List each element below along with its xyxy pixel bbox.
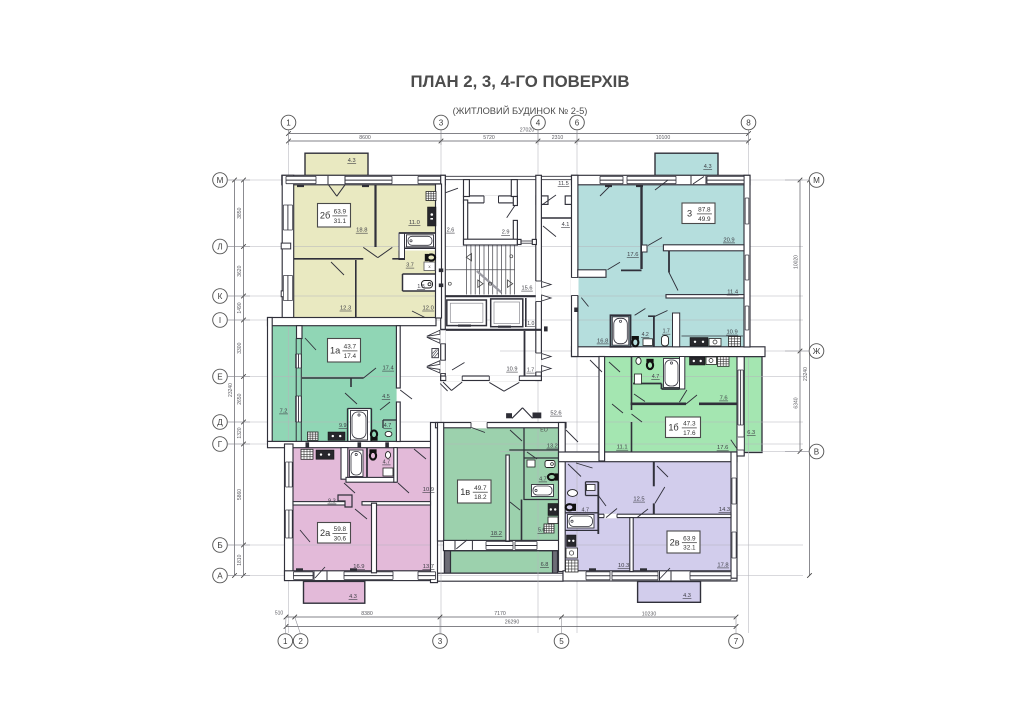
svg-text:30.6: 30.6 <box>334 535 347 542</box>
svg-text:31.1: 31.1 <box>334 218 347 225</box>
svg-text:ЕО: ЕО <box>540 428 548 434</box>
svg-text:4.3: 4.3 <box>348 158 356 164</box>
svg-text:23240: 23240 <box>228 383 234 397</box>
svg-text:1.0: 1.0 <box>527 321 534 327</box>
svg-text:10100: 10100 <box>656 135 671 141</box>
svg-text:14.3: 14.3 <box>719 507 730 513</box>
svg-text:4.2: 4.2 <box>642 332 649 338</box>
svg-text:63.9: 63.9 <box>334 209 347 216</box>
svg-text:10.3: 10.3 <box>618 563 629 569</box>
svg-text:13.7: 13.7 <box>423 564 434 570</box>
svg-text:1810: 1810 <box>237 554 243 565</box>
svg-text:Б: Б <box>217 541 222 550</box>
svg-text:20.9: 20.9 <box>723 237 734 243</box>
svg-text:10.9: 10.9 <box>423 487 434 493</box>
svg-text:5: 5 <box>559 637 564 646</box>
svg-text:15.6: 15.6 <box>522 286 533 292</box>
svg-text:Л: Л <box>217 242 222 251</box>
svg-text:4.3: 4.3 <box>683 593 691 599</box>
svg-text:12.5: 12.5 <box>633 497 644 503</box>
svg-text:18.2: 18.2 <box>491 531 502 537</box>
svg-text:11.4: 11.4 <box>727 290 739 296</box>
svg-text:В: В <box>814 447 819 456</box>
svg-text:2: 2 <box>298 637 303 646</box>
svg-text:1в: 1в <box>460 487 470 497</box>
svg-text:4.7: 4.7 <box>582 507 590 513</box>
svg-text:1.7: 1.7 <box>527 368 534 374</box>
svg-text:2.9: 2.9 <box>502 230 510 236</box>
svg-text:11.5: 11.5 <box>558 181 568 187</box>
svg-text:І: І <box>219 316 221 325</box>
svg-text:К: К <box>218 292 223 301</box>
svg-text:4.7: 4.7 <box>652 374 660 380</box>
svg-text:4.3: 4.3 <box>704 164 712 170</box>
svg-text:8: 8 <box>746 118 751 127</box>
svg-text:1.7: 1.7 <box>663 329 670 335</box>
svg-text:17.6: 17.6 <box>683 430 696 437</box>
svg-text:3: 3 <box>439 118 444 127</box>
svg-text:59.8: 59.8 <box>334 526 347 533</box>
svg-text:4: 4 <box>536 118 541 127</box>
svg-text:3300: 3300 <box>237 342 243 353</box>
svg-text:5860: 5860 <box>237 489 243 500</box>
svg-text:М: М <box>813 176 820 185</box>
svg-text:49.7: 49.7 <box>474 485 487 492</box>
svg-text:63.9: 63.9 <box>683 535 696 542</box>
svg-text:2б: 2б <box>320 211 330 221</box>
svg-text:47.3: 47.3 <box>683 421 696 428</box>
svg-text:16.8: 16.8 <box>597 338 608 344</box>
svg-text:4.7: 4.7 <box>384 423 392 429</box>
svg-text:10020: 10020 <box>794 255 800 269</box>
svg-text:4.7: 4.7 <box>539 476 547 482</box>
svg-text:(ЖИТЛОВИЙ БУДИНОК № 2-5): (ЖИТЛОВИЙ БУДИНОК № 2-5) <box>453 105 588 116</box>
svg-text:8600: 8600 <box>359 135 371 141</box>
svg-text:17.4: 17.4 <box>382 366 394 372</box>
svg-text:13.2: 13.2 <box>547 443 558 449</box>
svg-text:4.3: 4.3 <box>349 594 357 600</box>
svg-text:Ж: Ж <box>813 347 821 356</box>
svg-text:17.6: 17.6 <box>717 445 728 451</box>
svg-text:8380: 8380 <box>361 611 373 617</box>
svg-text:11.0: 11.0 <box>409 220 420 226</box>
svg-text:Е: Е <box>217 372 223 381</box>
svg-text:10.9: 10.9 <box>507 367 518 373</box>
svg-text:2650: 2650 <box>237 393 243 404</box>
svg-text:7: 7 <box>734 637 739 646</box>
svg-text:43.7: 43.7 <box>344 344 357 351</box>
svg-text:2.6: 2.6 <box>447 228 455 234</box>
svg-text:1490: 1490 <box>237 302 243 313</box>
svg-text:6: 6 <box>575 118 580 127</box>
svg-text:26290: 26290 <box>505 619 520 625</box>
svg-text:7170: 7170 <box>494 611 506 617</box>
svg-text:17.8: 17.8 <box>717 562 728 568</box>
svg-text:6.3: 6.3 <box>747 430 755 436</box>
svg-text:7.6: 7.6 <box>720 395 728 401</box>
svg-text:3.7: 3.7 <box>406 263 414 269</box>
svg-text:12.3: 12.3 <box>340 305 351 311</box>
svg-text:1а: 1а <box>330 346 341 356</box>
svg-text:1б: 1б <box>668 423 678 433</box>
svg-text:27020: 27020 <box>520 128 535 134</box>
svg-text:510: 510 <box>275 611 284 617</box>
svg-text:10.9: 10.9 <box>726 330 737 336</box>
svg-text:4.7: 4.7 <box>383 459 391 465</box>
svg-text:18.2: 18.2 <box>474 494 487 501</box>
svg-text:Г: Г <box>218 440 223 449</box>
svg-text:А: А <box>217 571 223 580</box>
svg-text:5.6: 5.6 <box>538 528 546 534</box>
svg-text:Д: Д <box>217 418 223 427</box>
svg-text:2в: 2в <box>670 537 680 547</box>
svg-text:1320: 1320 <box>237 427 243 438</box>
svg-text:2а: 2а <box>320 528 331 538</box>
svg-text:2310: 2310 <box>552 135 564 141</box>
svg-text:4.5: 4.5 <box>382 394 390 400</box>
svg-text:6340: 6340 <box>794 397 800 408</box>
svg-text:3850: 3850 <box>237 207 243 218</box>
svg-text:3: 3 <box>438 637 443 646</box>
svg-text:17.4: 17.4 <box>344 353 357 360</box>
svg-text:11.1: 11.1 <box>617 445 628 451</box>
svg-text:49.9: 49.9 <box>698 216 711 223</box>
svg-text:7.2: 7.2 <box>280 408 288 414</box>
svg-text:М: М <box>217 176 224 185</box>
svg-text:1: 1 <box>283 637 288 646</box>
svg-text:10230: 10230 <box>642 612 657 618</box>
svg-text:18.8: 18.8 <box>356 228 367 234</box>
svg-text:6.8: 6.8 <box>541 562 549 568</box>
svg-text:3: 3 <box>687 209 692 219</box>
svg-text:17.6: 17.6 <box>627 252 638 258</box>
svg-text:4.1: 4.1 <box>562 222 570 228</box>
svg-text:23240: 23240 <box>803 367 809 381</box>
svg-text:1.8: 1.8 <box>417 284 424 290</box>
svg-text:12.0: 12.0 <box>423 305 434 311</box>
svg-text:52.6: 52.6 <box>550 411 561 417</box>
svg-text:3620: 3620 <box>237 265 243 276</box>
svg-text:9.3: 9.3 <box>328 498 336 504</box>
svg-text:ПЛАН 2, 3, 4-ГО ПОВЕРХІВ: ПЛАН 2, 3, 4-ГО ПОВЕРХІВ <box>411 72 630 91</box>
svg-text:9.9: 9.9 <box>339 423 347 429</box>
svg-text:87.8: 87.8 <box>698 207 711 214</box>
svg-text:1: 1 <box>286 118 291 127</box>
svg-text:5720: 5720 <box>483 135 495 141</box>
svg-text:32.1: 32.1 <box>683 545 696 552</box>
